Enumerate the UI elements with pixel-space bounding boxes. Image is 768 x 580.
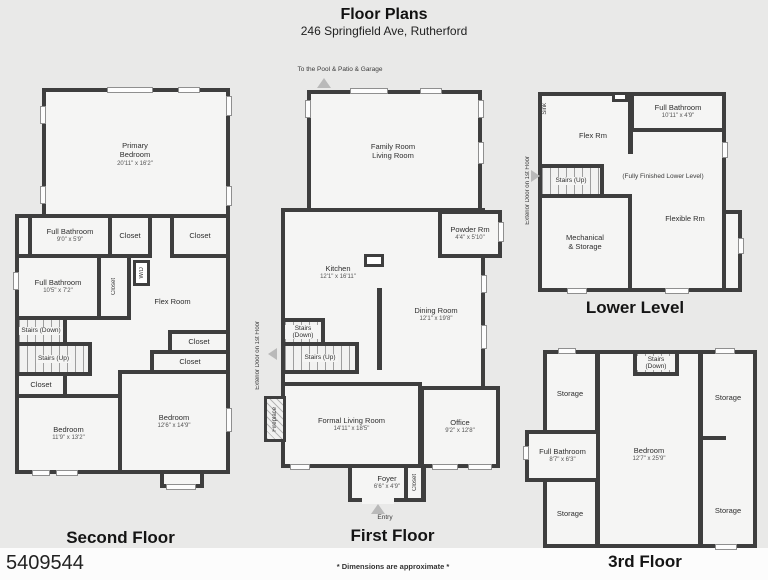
- room-storage-top-left: Storage: [545, 388, 595, 400]
- room-primary-bedroom: Primary Bedroom 20'11" x 16'2": [100, 138, 170, 172]
- window: [715, 544, 737, 550]
- room-full-bathroom-top: Full Bathroom 9'0" x 5'9": [28, 214, 112, 258]
- window: [523, 446, 529, 460]
- stairs-up: Stairs (Up): [538, 164, 604, 198]
- room-bedroom-3rd: Bedroom 12'7" x 25'9": [600, 443, 698, 467]
- room-bedroom-left: Bedroom 11'9" x 13'2": [15, 394, 122, 474]
- room-label: Full Bathroom: [655, 104, 702, 113]
- entry-annotation: Entry: [355, 514, 415, 521]
- room-dims: 14'11" x 18'5": [334, 426, 370, 433]
- room-dims: 12'1" x 19'8": [420, 316, 453, 323]
- room-closet-foyer: Closet: [404, 464, 425, 502]
- window: [478, 100, 484, 118]
- room-storage-bottom-right: Storage: [702, 505, 754, 517]
- room-dims: 9'0" x 5'9": [57, 237, 83, 244]
- room-powder-room: Powder Rm 4'4" x 5'10": [438, 210, 502, 258]
- floor-title-first: First Floor: [310, 526, 475, 546]
- room-storage-bottom-left: Storage: [545, 508, 595, 520]
- stairs-label: Stairs (Up): [553, 177, 588, 184]
- room-label: Bedroom: [53, 426, 83, 435]
- annotation-label: Sink: [542, 103, 548, 115]
- room-label: Flex Rm: [579, 132, 607, 141]
- entry-arrow-icon: [371, 504, 385, 514]
- stairs-label: Stairs (Up): [302, 354, 337, 361]
- room-label: Foyer: [377, 475, 396, 484]
- room-label: Flexible Rm: [665, 215, 705, 224]
- annotation-label: (Fully Finished Lower Level): [622, 173, 703, 180]
- annotation-label: Exterior Door on 1st Floor: [255, 321, 261, 390]
- room-label: Dining Room: [414, 307, 457, 316]
- room-dining-room: Dining Room 12'1" x 19'8": [390, 303, 482, 327]
- page-subtitle: 246 Springfield Ave, Rutherford: [0, 24, 768, 38]
- room-dims: 11'9" x 13'2": [52, 435, 84, 442]
- room-label: Full Bathroom: [35, 279, 82, 288]
- sink-fixture: [612, 92, 628, 102]
- floor-title-lower: Lower Level: [555, 298, 715, 318]
- room-family-room: Family Room Living Room: [343, 140, 443, 164]
- window: [40, 186, 46, 204]
- window: [498, 222, 504, 242]
- floor-title-second: Second Floor: [38, 528, 203, 548]
- finished-note: (Fully Finished Lower Level): [600, 170, 726, 182]
- room-closet-mid: Closet: [97, 254, 131, 320]
- stairs-label: Stairs (Up): [36, 355, 71, 362]
- room-dims: 9'2" x 12'8": [445, 428, 475, 435]
- room-label: Closet: [188, 338, 209, 347]
- exterior-door-arrow-icon: [268, 348, 277, 360]
- kitchen-island: [364, 254, 384, 267]
- window: [226, 186, 232, 206]
- listing-id: 5409544: [6, 552, 84, 575]
- window: [715, 348, 735, 354]
- room-label: Flex Room: [154, 298, 190, 307]
- window: [13, 272, 19, 290]
- exterior-door-annotation: Exterior Door on 1st Floor: [522, 140, 534, 240]
- room-dims: 10'5" x 7'2": [43, 288, 73, 295]
- stairs-label: Stairs (Down): [285, 325, 321, 340]
- room-full-bathroom-lower: Full Bathroom 10'11" x 4'9": [630, 92, 726, 132]
- window: [420, 88, 442, 94]
- room-label: Formal Living Room: [318, 417, 385, 426]
- room-label: W/D: [139, 267, 145, 279]
- wall: [628, 92, 633, 154]
- fireplace-label: Fireplace: [272, 407, 278, 432]
- stairs-label: Stairs (Down): [19, 327, 62, 334]
- window: [468, 464, 492, 470]
- window: [290, 464, 310, 470]
- window: [226, 96, 232, 116]
- window: [481, 325, 487, 349]
- stairs-down: Stairs (Down): [633, 350, 679, 376]
- room-label: Storage: [715, 394, 741, 403]
- room-dims: 20'11" x 16'2": [117, 161, 153, 168]
- room-label: Closet: [119, 232, 140, 241]
- room-dims: 12'7" x 25'9": [633, 456, 666, 463]
- room-closet-top-1: Closet: [108, 214, 152, 258]
- room-dims: 6'6" x 4'9": [374, 484, 400, 491]
- window: [166, 484, 196, 490]
- room-label: Storage: [715, 507, 741, 516]
- room-full-bathroom-mid: Full Bathroom 10'5" x 7'2": [15, 254, 101, 320]
- exterior-door-annotation: Exterior Door on 1st Floor: [252, 295, 264, 415]
- stairs-up: Stairs (Up): [15, 342, 92, 376]
- room-dims: 12'6" x 14'9": [158, 423, 191, 430]
- washer-dryer: W/D: [133, 260, 150, 286]
- window: [738, 238, 744, 254]
- window: [478, 142, 484, 164]
- fireplace: Fireplace: [264, 396, 286, 442]
- room-label: Bedroom: [634, 447, 664, 456]
- room-flex-room: Flex Room: [135, 296, 210, 308]
- room-label: Closet: [189, 232, 210, 241]
- window: [40, 106, 46, 124]
- room-label: Powder Rm: [450, 226, 489, 235]
- window: [558, 348, 576, 354]
- window: [722, 142, 728, 158]
- room-dims: 12'1" x 16'11": [320, 274, 356, 281]
- room-label-2: Living Room: [372, 152, 414, 161]
- window: [305, 100, 311, 118]
- room-label: Closet: [30, 381, 51, 390]
- room-label: Full Bathroom: [539, 448, 586, 457]
- window: [178, 87, 200, 93]
- room-office: Office 9'2" x 12'8": [420, 386, 500, 468]
- annotation-label: Exterior Door on 1st Floor: [525, 156, 531, 225]
- room-label: Full Bathroom: [47, 228, 94, 237]
- room-dims: 8'7" x 6'3": [549, 457, 575, 464]
- room-label: Closet: [179, 358, 200, 367]
- room-mechanical-storage: Mechanical & Storage: [538, 194, 632, 292]
- window: [481, 275, 487, 293]
- room-dims: 4'4" x 5'10": [455, 235, 485, 242]
- stairs-label: Stairs (Down): [637, 356, 675, 371]
- room-label: Office: [450, 419, 469, 428]
- window: [567, 288, 587, 294]
- room-label: Bedroom: [159, 414, 189, 423]
- room-dims: 10'11" x 4'9": [662, 113, 694, 120]
- room-label-2: & Storage: [568, 243, 601, 252]
- room-label: Storage: [557, 510, 583, 519]
- room-formal-living: Formal Living Room 14'11" x 18'5": [281, 382, 422, 468]
- room-bedroom-right: Bedroom 12'6" x 14'9": [118, 370, 230, 474]
- window: [665, 288, 689, 294]
- window: [226, 408, 232, 432]
- wall: [377, 288, 382, 370]
- room-label: Closet: [111, 278, 117, 295]
- window: [350, 88, 388, 94]
- room-label: Storage: [557, 390, 583, 399]
- window: [32, 470, 50, 476]
- window: [432, 464, 458, 470]
- floor-title-third: 3rd Floor: [555, 552, 735, 572]
- stairs-up: Stairs (Up): [281, 342, 359, 374]
- exterior-door-arrow-icon: [531, 170, 540, 182]
- room-storage-top-right: Storage: [702, 392, 754, 404]
- window: [107, 87, 153, 93]
- pool-annotation: To the Pool & Patio & Garage: [280, 66, 400, 73]
- room-closet-top-2: Closet: [170, 214, 230, 258]
- disclaimer: * Dimensions are approximate *: [323, 562, 463, 571]
- wall: [698, 350, 703, 548]
- pool-arrow-icon: [317, 78, 331, 88]
- room-label: Primary Bedroom: [111, 142, 159, 159]
- window: [56, 470, 78, 476]
- room-label: Kitchen: [325, 265, 350, 274]
- room-label: Closet: [412, 474, 418, 491]
- room-flex-rm: Flex Rm: [558, 130, 628, 142]
- room-full-bathroom-3rd: Full Bathroom 8'7" x 6'3": [525, 430, 600, 482]
- sink-annotation: Sink: [540, 96, 550, 122]
- room-flexible-rm: Flexible Rm: [645, 213, 725, 225]
- page-title: Floor Plans: [0, 6, 768, 24]
- wall: [700, 436, 726, 440]
